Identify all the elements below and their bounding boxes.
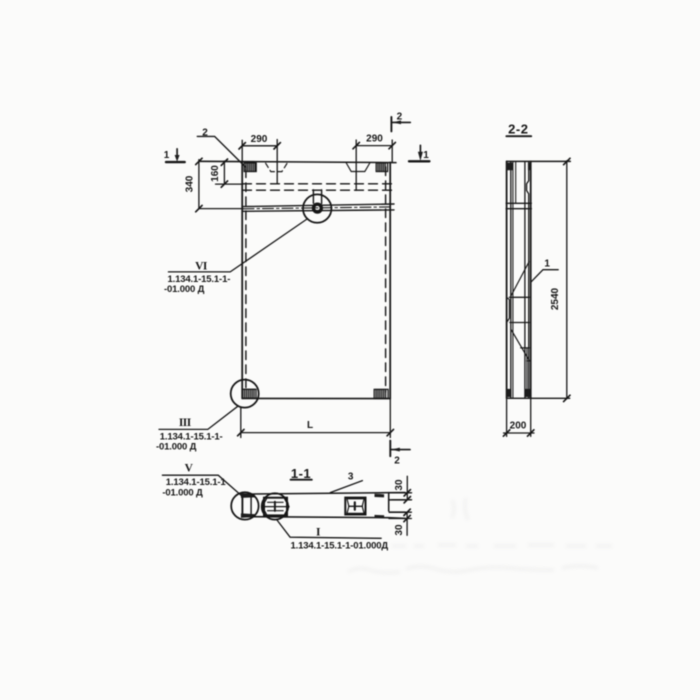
svg-text:1: 1 <box>423 150 429 161</box>
svg-text:2-2: 2-2 <box>508 122 528 137</box>
svg-text:2540: 2540 <box>550 287 561 310</box>
svg-text:30: 30 <box>394 524 405 536</box>
svg-text:L: L <box>307 420 313 431</box>
svg-text:2: 2 <box>202 127 208 138</box>
svg-text:2: 2 <box>394 455 400 466</box>
svg-text:290: 290 <box>251 134 268 145</box>
svg-text:3: 3 <box>348 472 354 483</box>
svg-text:V: V <box>185 462 194 474</box>
svg-text:VI: VI <box>195 260 208 272</box>
svg-text:1-1: 1-1 <box>291 466 311 481</box>
svg-text:1.134.1-15.1-1-01.000Д: 1.134.1-15.1-1-01.000Д <box>291 540 389 551</box>
svg-text:I: I <box>316 526 321 538</box>
svg-text:-01.000 Д: -01.000 Д <box>156 442 197 453</box>
svg-text:1.134.1-15.1-1: 1.134.1-15.1-1 <box>166 477 227 488</box>
svg-text:160: 160 <box>210 165 221 182</box>
svg-text:-01.000 Д: -01.000 Д <box>164 284 205 295</box>
svg-text:200: 200 <box>510 421 527 432</box>
svg-text:290: 290 <box>366 134 383 145</box>
svg-text:1: 1 <box>544 259 550 270</box>
svg-text:III: III <box>179 417 192 429</box>
svg-text:-01.000 Д: -01.000 Д <box>162 488 203 499</box>
svg-text:1: 1 <box>164 150 170 161</box>
svg-text:2: 2 <box>397 112 403 123</box>
svg-text:340: 340 <box>185 175 196 192</box>
svg-text:30: 30 <box>394 479 405 491</box>
